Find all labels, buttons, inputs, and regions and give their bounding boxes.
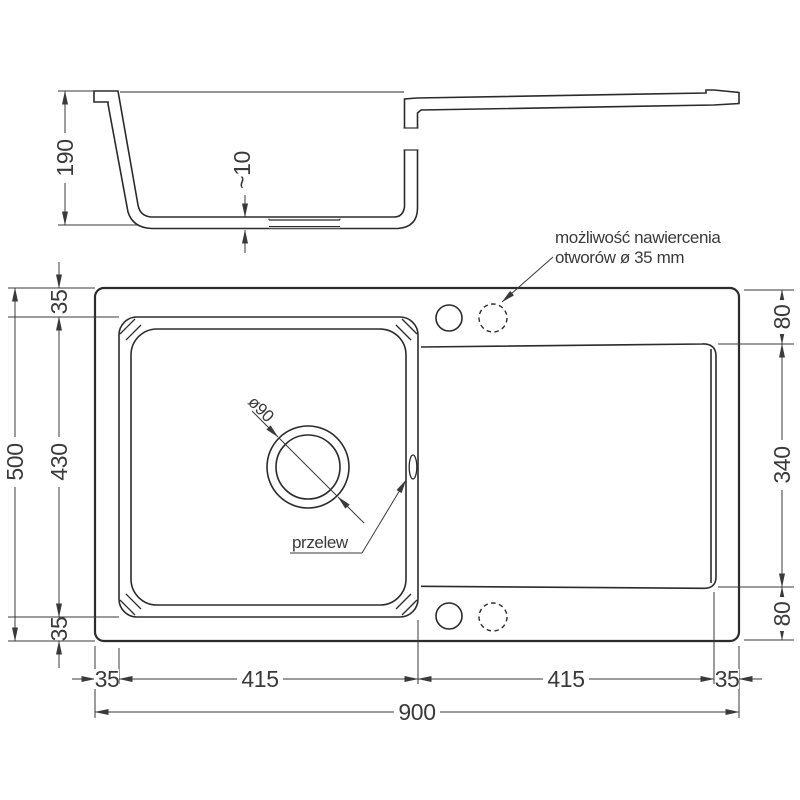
- section-profile: [94, 90, 739, 229]
- overflow-callout: przelew: [290, 480, 406, 553]
- dim-10-label: ~10: [229, 151, 255, 189]
- overflow-label: przelew: [292, 533, 349, 552]
- drill-note-line2: otworów ø 35 mm: [555, 248, 684, 267]
- drill-note-line1: możliwość nawiercenia: [555, 228, 721, 247]
- dim-section-height: 190: [52, 91, 78, 225]
- dim-bottom-thickness: ~10: [229, 151, 255, 253]
- drain-diameter-label: ø90: [244, 392, 277, 425]
- plan-view: ø90 przelew możliwość nawiercenia otworó…: [95, 228, 739, 641]
- optional-hole-top: [479, 304, 507, 332]
- bowl-rim-inner: [131, 329, 406, 605]
- tap-hole-top: [436, 305, 462, 331]
- dims-bottom: 35 415 415 35 900: [72, 592, 762, 725]
- bowl-corner-bevels: [120, 319, 417, 615]
- dim-430-label: 430: [46, 443, 72, 480]
- dim-190-label: 190: [52, 139, 78, 176]
- dim-80-bottom-label: 80: [769, 602, 795, 627]
- optional-hole-bottom: [479, 603, 507, 631]
- bowl-rim-outer: [119, 317, 418, 617]
- dims-left: 500 430 35 35: [2, 262, 119, 668]
- drill-note: możliwość nawiercenia otworów ø 35 mm: [502, 228, 721, 302]
- dim-500-label: 500: [2, 443, 28, 480]
- dim-415-bowl-label: 415: [241, 666, 278, 692]
- drawing-canvas: 190 ~10: [0, 0, 800, 800]
- dim-340-label: 340: [769, 446, 795, 483]
- drainer-recess: [421, 344, 716, 588]
- dim-415-drainer-label: 415: [547, 666, 584, 692]
- dim-35-right-label: 35: [715, 666, 740, 692]
- dim-900-label: 900: [398, 699, 435, 725]
- overflow-opening: [409, 455, 417, 479]
- section-drain-recess: [269, 219, 340, 229]
- section-overflow-gap: [403, 128, 419, 150]
- dims-right: 80 340 80: [718, 290, 795, 640]
- tap-hole-bottom: [436, 603, 462, 629]
- dim-35-left-label: 35: [95, 666, 120, 692]
- sink-technical-drawing: 190 ~10: [0, 0, 800, 800]
- dim-35-bottomleft-label: 35: [46, 617, 72, 642]
- dim-drain-diameter: ø90: [244, 392, 364, 523]
- dim-80-top-label: 80: [769, 305, 795, 330]
- dim-35-top-label: 35: [46, 290, 72, 315]
